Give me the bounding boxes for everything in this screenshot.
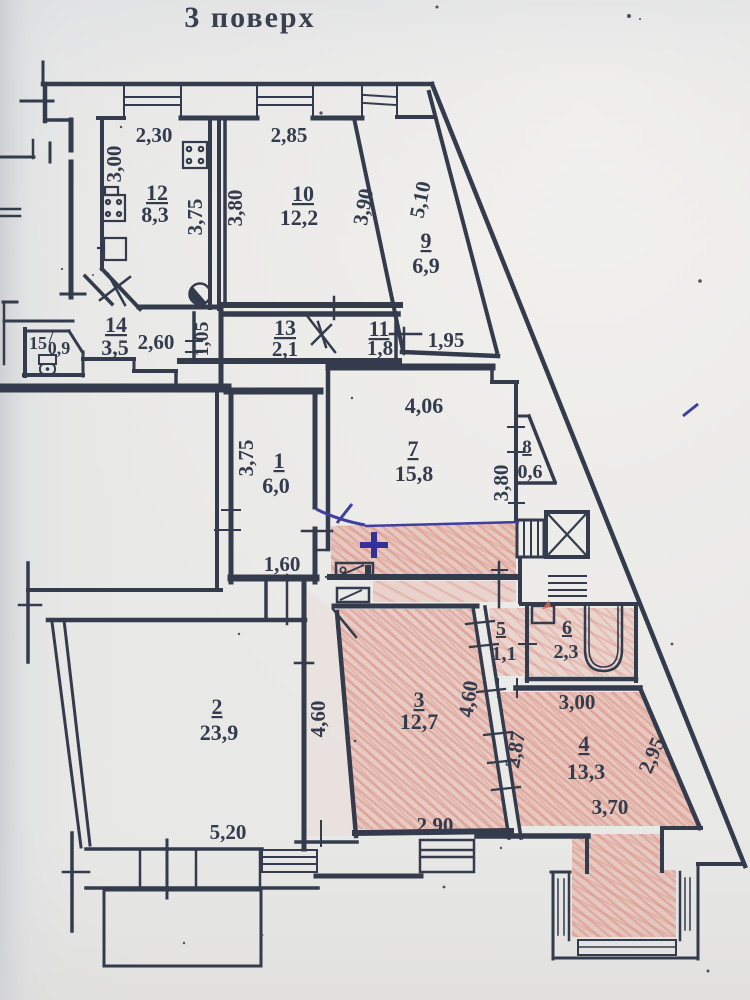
svg-text:2,3: 2,3 bbox=[554, 641, 579, 663]
svg-text:3,00: 3,00 bbox=[102, 146, 126, 183]
svg-text:7: 7 bbox=[408, 436, 419, 461]
svg-text:2,90: 2,90 bbox=[417, 813, 454, 837]
svg-text:6,9: 6,9 bbox=[412, 253, 440, 278]
svg-text:3,80: 3,80 bbox=[489, 465, 513, 502]
svg-text:5,20: 5,20 bbox=[210, 820, 247, 844]
svg-text:/: / bbox=[48, 330, 54, 347]
svg-text:10: 10 bbox=[292, 181, 314, 206]
svg-text:12,2: 12,2 bbox=[280, 205, 319, 230]
svg-text:2: 2 bbox=[212, 694, 223, 719]
svg-text:3,00: 3,00 bbox=[559, 690, 596, 714]
svg-text:4,06: 4,06 bbox=[405, 393, 444, 418]
svg-text:6: 6 bbox=[562, 617, 572, 639]
svg-text:5: 5 bbox=[496, 618, 506, 640]
svg-text:6,0: 6,0 bbox=[262, 473, 290, 498]
svg-text:3,70: 3,70 bbox=[592, 795, 629, 819]
svg-text:3,80: 3,80 bbox=[223, 190, 247, 227]
svg-text:15: 15 bbox=[29, 333, 47, 353]
svg-text:3,75: 3,75 bbox=[234, 440, 258, 477]
svg-text:14: 14 bbox=[105, 312, 127, 337]
svg-text:1,05: 1,05 bbox=[191, 322, 213, 357]
svg-text:2,30: 2,30 bbox=[136, 123, 173, 147]
svg-text:15,8: 15,8 bbox=[395, 461, 434, 486]
svg-text:2,85: 2,85 bbox=[271, 123, 308, 147]
svg-text:4: 4 bbox=[579, 731, 590, 756]
svg-text:9: 9 bbox=[421, 228, 432, 253]
svg-text:12,7: 12,7 bbox=[400, 709, 439, 734]
svg-text:1,8: 1,8 bbox=[367, 336, 393, 360]
svg-text:1,95: 1,95 bbox=[428, 328, 465, 352]
svg-text:23,9: 23,9 bbox=[200, 720, 239, 745]
svg-text:4,60: 4,60 bbox=[306, 701, 330, 738]
svg-text:2,1: 2,1 bbox=[272, 337, 298, 361]
svg-text:3,75: 3,75 bbox=[183, 199, 207, 236]
svg-text:8,3: 8,3 bbox=[141, 202, 169, 227]
svg-text:3,5: 3,5 bbox=[101, 335, 129, 360]
svg-text:0,6: 0,6 bbox=[518, 461, 543, 483]
svg-text:2,60: 2,60 bbox=[138, 330, 175, 354]
svg-text:8: 8 bbox=[522, 437, 532, 458]
svg-text:13,3: 13,3 bbox=[567, 759, 606, 784]
svg-text:1: 1 bbox=[274, 448, 285, 473]
svg-text:3 поверх: 3 поверх bbox=[184, 1, 315, 34]
svg-text:1,1: 1,1 bbox=[492, 643, 517, 665]
svg-text:1,60: 1,60 bbox=[264, 552, 301, 576]
